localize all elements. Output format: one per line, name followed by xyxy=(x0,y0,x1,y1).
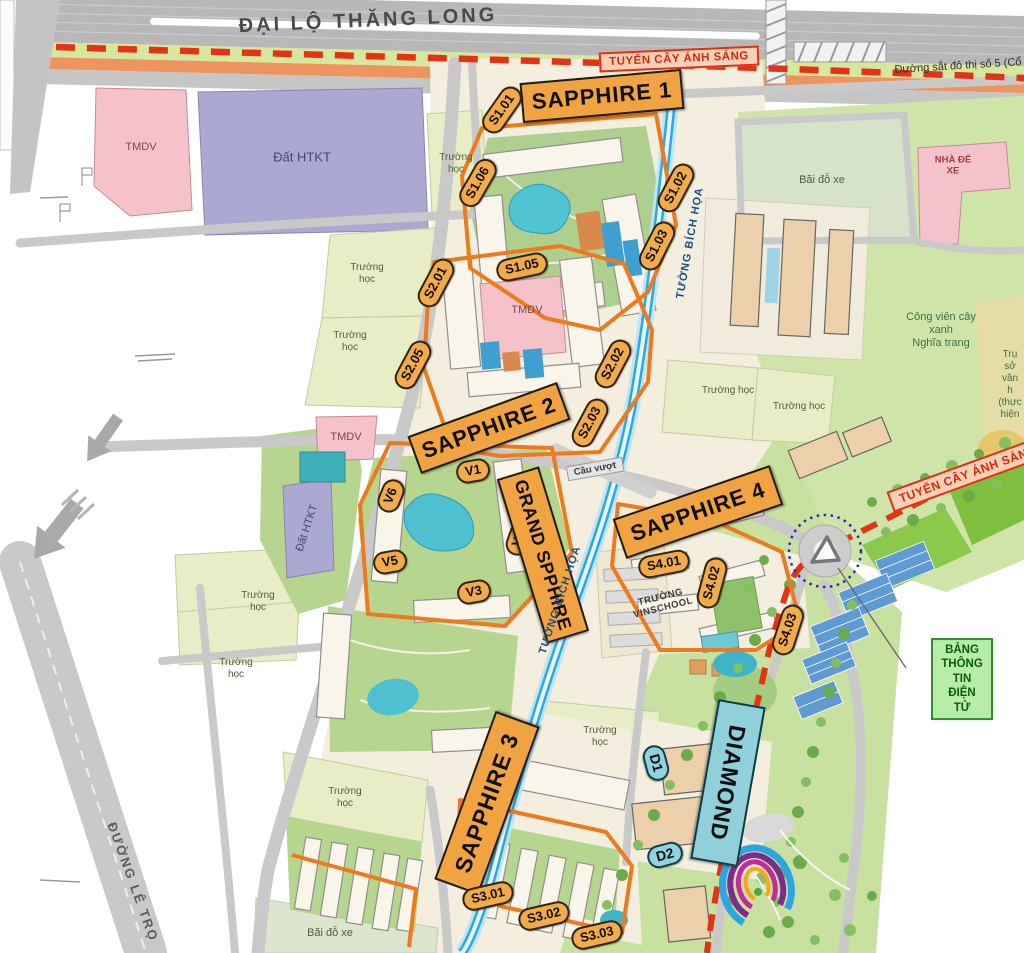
school-label-2: Trường học xyxy=(344,262,390,286)
parking-label-ne: Bãi đỗ xe xyxy=(799,174,845,186)
direction-arrow-icon xyxy=(76,409,130,469)
roundabout xyxy=(789,515,861,587)
parcel-label-tmdv-center: TMDV xyxy=(511,304,542,316)
info-board-label: BẢNG THÔNG TIN ĐIỆN TỬ xyxy=(931,638,993,720)
garage-label: NHÀ ĐỂ XE xyxy=(935,155,971,178)
school-label-8: Trường học xyxy=(322,786,368,810)
parcel-label-tmdv-nw: TMDV xyxy=(125,141,156,153)
flag-icon xyxy=(60,168,92,222)
park-cemetery-label: Công viên cây xanh Nghĩa trang xyxy=(900,311,983,351)
school-label-3: Trường học xyxy=(327,330,373,354)
parcel-label-htkt-nw: Đất HTKT xyxy=(273,150,331,165)
school-label-9: Trường học xyxy=(577,725,623,749)
corner-road xyxy=(0,0,60,194)
parcel-label-tmdv-west: TMDV xyxy=(330,431,361,443)
school-label-6: Trường học xyxy=(235,590,281,614)
school-label-4: Trường học xyxy=(702,385,754,397)
parking-label-s: Bãi đỗ xe xyxy=(307,927,353,939)
hq-label: Trụ sở văn h (thực hiện xyxy=(998,349,1021,421)
school-label-5: Trường học xyxy=(773,401,825,413)
school-label-7: Trường học xyxy=(213,657,259,681)
masterplan-map: ĐẠI LỘ THĂNG LONG TUYẾN CÂY ÁNH SÁNG Đườ… xyxy=(0,0,1024,953)
parcel-school-4 xyxy=(662,360,758,440)
